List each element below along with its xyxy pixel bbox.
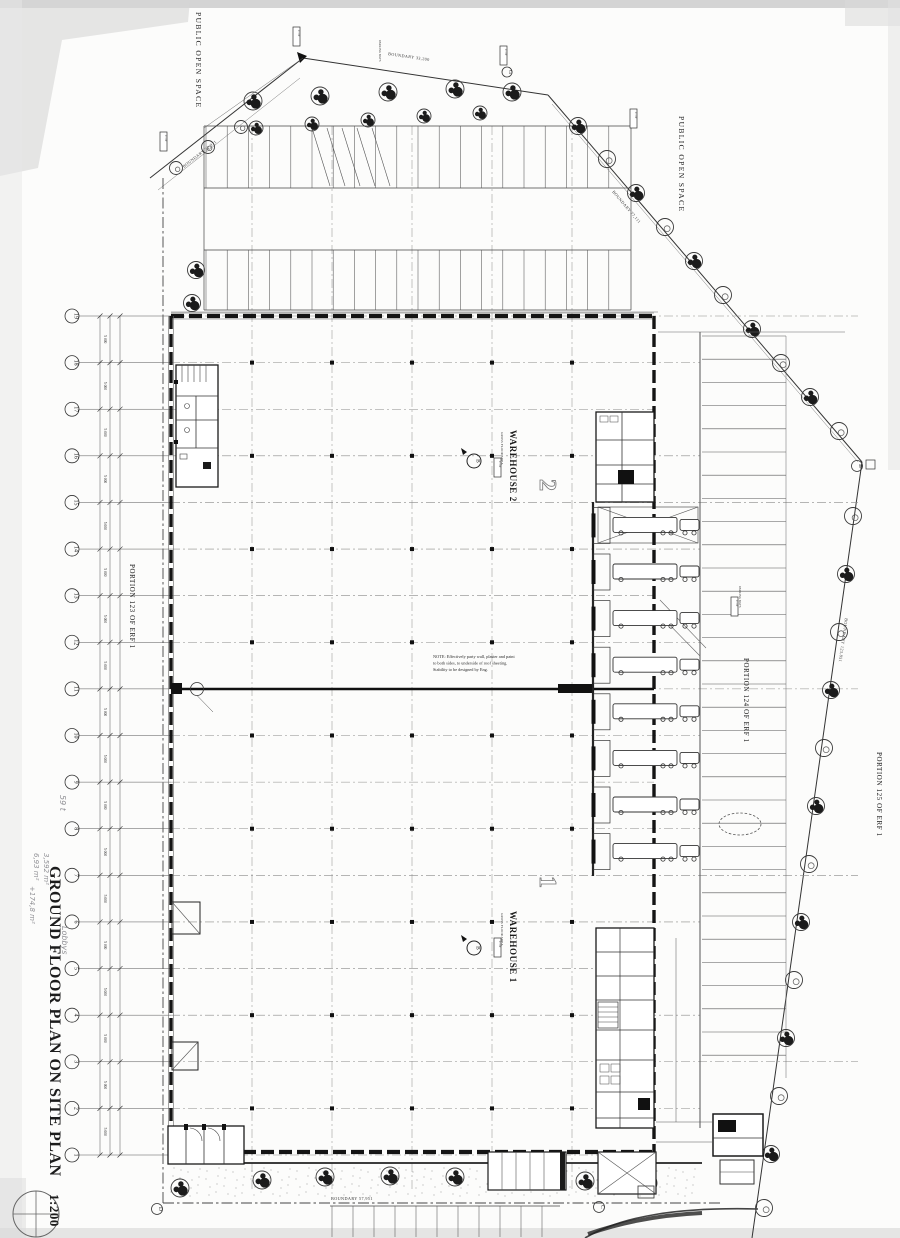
scanned-site-plan-page: 15 00025 00035 00045 00055 00065 00075 0… — [0, 0, 900, 1238]
boundary-bottom-label: BOUNDARY 57,951 — [331, 1196, 373, 1202]
tree-icon — [473, 106, 487, 120]
boundary-top-label: BOUNDARY 33,200 — [388, 51, 430, 63]
svg-text:4: 4 — [73, 1014, 79, 1017]
tree-icon — [838, 566, 855, 583]
svg-text:1: 1 — [73, 1154, 79, 1157]
truck-icon — [613, 797, 699, 815]
tree-icon — [184, 295, 201, 312]
tree-icon — [816, 740, 833, 757]
parking-area-north — [204, 126, 631, 310]
tree-icon — [756, 1200, 773, 1217]
tree-icon — [188, 262, 205, 279]
svg-text:17.19: 17.19 — [634, 112, 638, 119]
entrance-canopy — [488, 1152, 566, 1190]
warehouse-2-ghost-number: 2 — [534, 479, 560, 491]
yard-lines — [171, 312, 845, 1238]
svg-text:5 000: 5 000 — [103, 475, 107, 483]
ref-letter-d: D — [157, 1207, 163, 1211]
tree-icon — [801, 856, 818, 873]
svg-text:5 000: 5 000 — [103, 755, 107, 763]
tree-icon — [771, 1088, 788, 1105]
svg-text:5 000: 5 000 — [103, 382, 107, 390]
svg-text:15: 15 — [73, 499, 79, 505]
svg-text:5: 5 — [73, 967, 79, 970]
svg-text:5 000: 5 000 — [103, 662, 107, 670]
svg-text:17.19: 17.19 — [498, 941, 502, 948]
svg-text:10: 10 — [73, 733, 79, 739]
tree-icon — [170, 162, 183, 175]
truck-icon — [613, 517, 699, 535]
tree-icon — [379, 83, 397, 101]
svg-text:17: 17 — [73, 406, 79, 412]
handwritten-area-3: +174,8 m² — [28, 886, 36, 924]
svg-text:17.19: 17.19 — [164, 135, 168, 142]
svg-text:5 000: 5 000 — [103, 522, 107, 530]
svg-text:11: 11 — [73, 686, 79, 692]
drawing-scale: 1:200 — [47, 1194, 62, 1227]
left-wall-rooms — [172, 902, 200, 1070]
tree-icon — [446, 1168, 464, 1186]
truck-icon — [613, 564, 699, 582]
svg-text:5 000: 5 000 — [103, 801, 107, 809]
warehouse-2-label: WAREHOUSE 2 — [508, 430, 518, 502]
svg-text:16: 16 — [73, 453, 79, 459]
handwritten-misc: 59 t — [58, 795, 67, 812]
svg-text:7: 7 — [73, 874, 79, 877]
reference-letters: D C G B — [152, 67, 876, 1215]
svg-text:3: 3 — [73, 1060, 79, 1063]
svg-text:8: 8 — [73, 827, 79, 830]
svg-text:5 000: 5 000 — [103, 941, 107, 949]
svg-text:5 000: 5 000 — [103, 335, 107, 343]
south-ramp-structure — [598, 1152, 656, 1198]
section-markers: B B — [461, 448, 481, 955]
truck-icon — [613, 657, 699, 675]
svg-text:6: 6 — [73, 920, 79, 923]
tree-icon — [808, 798, 825, 815]
svg-text:13: 13 — [73, 593, 79, 599]
tree-icon — [773, 355, 790, 372]
truck-icon — [613, 844, 699, 862]
svg-text:2: 2 — [73, 1107, 79, 1110]
office-block-northwest — [174, 365, 218, 487]
zone-portion-123: PORTION 123 OF ERF 1 — [128, 564, 136, 649]
svg-text:5 000: 5 000 — [103, 988, 107, 996]
svg-text:17.19: 17.19 — [735, 600, 739, 607]
tree-icon — [793, 914, 810, 931]
text-labels: GROUND FLOOR PLAN ON SITE PLAN 1:200 PUB… — [28, 12, 883, 1227]
zone-public-open-space-right: PUBLIC OPEN SPACE — [677, 116, 686, 212]
svg-text:17.19: 17.19 — [498, 461, 502, 468]
tree-icon — [235, 121, 248, 134]
svg-text:18: 18 — [73, 360, 79, 366]
tree-icon — [305, 117, 319, 131]
party-wall-note-line2: to both sides, to underside of roof shee… — [433, 661, 507, 667]
tree-icon — [253, 1171, 271, 1189]
section-marker-b-warehouse1: B — [475, 946, 481, 950]
office-block-northeast — [596, 412, 654, 502]
site-boundaries — [150, 52, 862, 1238]
office-block-southeast — [596, 928, 676, 1128]
tree-icon — [311, 87, 329, 105]
tree-icon — [657, 219, 674, 236]
tree-icon — [417, 109, 431, 123]
tree-icon — [823, 682, 840, 699]
tree-icon — [503, 83, 521, 101]
section-marker-b-warehouse2: B — [475, 459, 481, 463]
tree-icon — [446, 80, 464, 98]
party-wall-note-line1: NOTE: Effectively party wall, plaster an… — [433, 654, 515, 660]
svg-text:5 000: 5 000 — [103, 568, 107, 576]
svg-text:5 000: 5 000 — [103, 708, 107, 716]
tree-icon — [802, 389, 819, 406]
ref-letter-g: G — [507, 70, 513, 74]
warehouse-1-label: WAREHOUSE 1 — [508, 911, 518, 983]
warehouse-1-ghost-number: 1 — [534, 876, 560, 888]
svg-text:14: 14 — [73, 546, 79, 552]
site-plan-drawing: 15 00025 00035 00045 00055 00065 00075 0… — [0, 0, 900, 1238]
tree-icon — [244, 92, 262, 110]
zone-public-open-space-top: PUBLIC OPEN SPACE — [194, 12, 203, 108]
truck-icon — [613, 750, 699, 768]
boundary-top-left-label: BOUNDARY 32,971 — [182, 139, 219, 170]
svg-text:5 000: 5 000 — [103, 1081, 107, 1089]
gatehouse — [656, 1114, 763, 1184]
svg-text:5 000: 5 000 — [103, 615, 107, 623]
handwritten-area-1: 6,93 m² — [32, 853, 40, 881]
tree-icon — [316, 1168, 334, 1186]
tree-icon — [249, 121, 263, 135]
tree-icon — [715, 287, 732, 304]
truck-icon — [613, 704, 699, 722]
svg-text:5 000: 5 000 — [103, 1034, 107, 1042]
ref-letter-c: C — [599, 1205, 605, 1209]
tree-icon — [381, 1167, 399, 1185]
zone-portion-124: PORTION 124 OF ERF 1 — [742, 658, 750, 743]
tree-icon — [171, 1179, 189, 1197]
tree-icon — [686, 253, 703, 270]
svg-text:17.19: 17.19 — [504, 49, 508, 56]
svg-text:5 000: 5 000 — [103, 895, 107, 903]
svg-text:19: 19 — [73, 313, 79, 319]
truck-icon — [613, 611, 699, 629]
handwritten-lobbys: Lobbys — [60, 926, 69, 954]
svg-text:17.19: 17.19 — [297, 30, 301, 37]
parking-note-north: PARKING BAYS — [378, 40, 382, 62]
drawing-title: GROUND FLOOR PLAN ON SITE PLAN — [46, 866, 63, 1177]
zone-portion-125: PORTION 125 OF ERF 1 — [875, 752, 883, 837]
party-wall-note-line3: Stability to be designed by Eng. — [433, 667, 488, 672]
warehouse-building — [168, 313, 676, 1198]
boundary-trees — [170, 80, 862, 1217]
tree-icon — [361, 113, 375, 127]
tree-icon — [744, 321, 761, 338]
handwritten-area-2: 3,592 m² — [42, 853, 50, 885]
svg-text:12: 12 — [73, 639, 79, 645]
svg-text:5 000: 5 000 — [103, 1128, 107, 1136]
tree-icon — [628, 185, 645, 202]
corner-rooms-southwest — [168, 1124, 244, 1164]
svg-text:5 000: 5 000 — [103, 428, 107, 436]
ref-letter-b: B — [857, 464, 863, 468]
svg-text:9: 9 — [73, 781, 79, 784]
tree-icon — [831, 423, 848, 440]
tree-icon — [576, 1172, 594, 1190]
tree-icon — [763, 1146, 780, 1163]
svg-text:5 000: 5 000 — [103, 848, 107, 856]
tree-icon — [786, 972, 803, 989]
tree-icon — [599, 151, 616, 168]
